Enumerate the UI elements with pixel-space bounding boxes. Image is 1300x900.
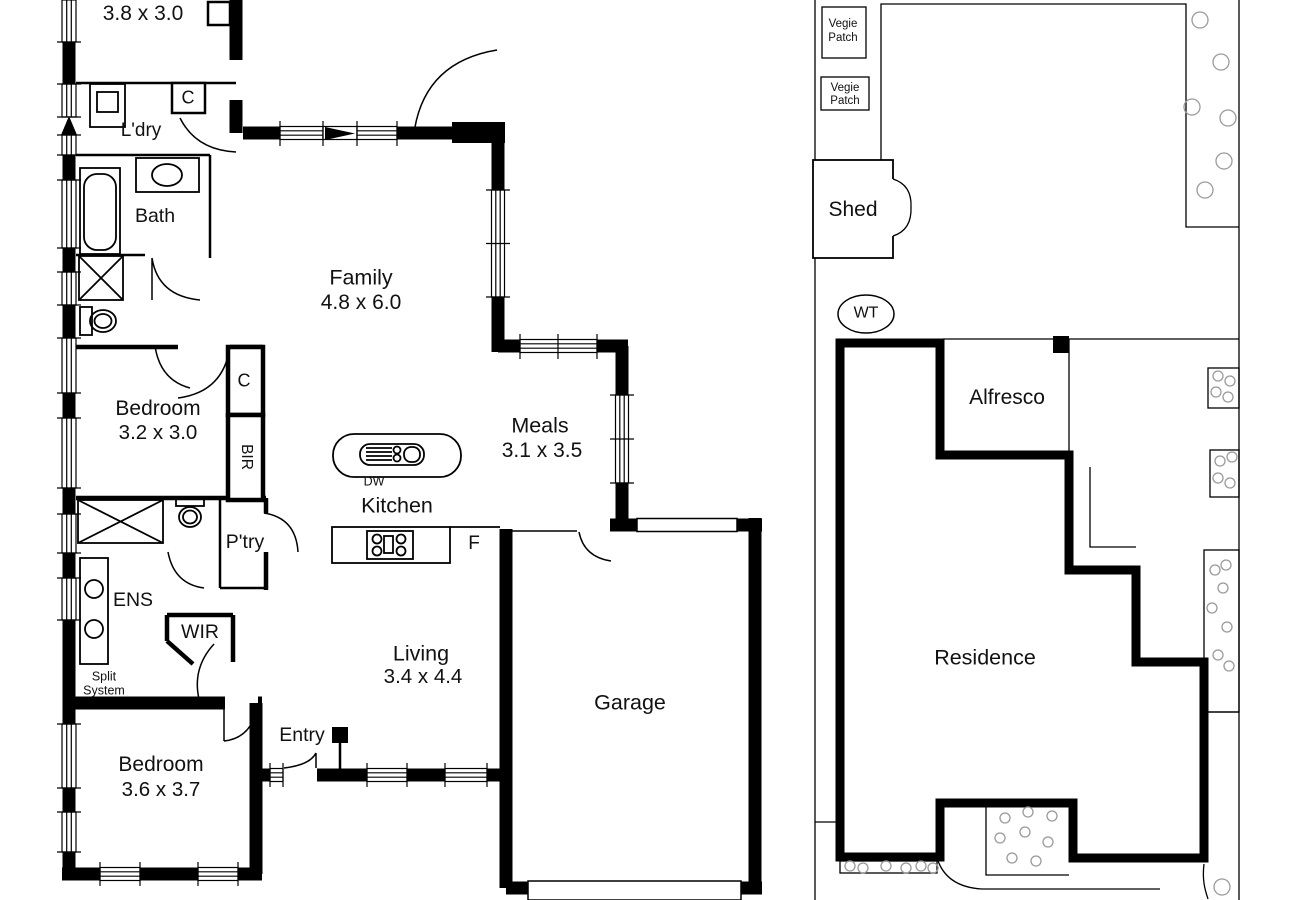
garden-bed-b bbox=[1210, 450, 1239, 497]
kitchen-label: Kitchen bbox=[361, 495, 433, 518]
vegie-patch-2-line2: Patch bbox=[830, 95, 859, 107]
bath-label: Bath bbox=[135, 206, 175, 226]
wir-door-arc bbox=[197, 644, 214, 699]
ensuite-door-arc bbox=[168, 552, 204, 588]
garage-door-arc bbox=[507, 531, 611, 561]
family-label: Family bbox=[329, 267, 392, 290]
laundry-label: L'dry bbox=[121, 121, 162, 141]
toilet-2 bbox=[176, 497, 204, 527]
floorplan-canvas: 3.8 x 3.0 L'dry C Bath Bedroom 3.2 x 3.0… bbox=[0, 0, 1300, 900]
shower-ensuite bbox=[78, 500, 163, 543]
family-corner-block bbox=[452, 122, 505, 143]
family-door-arc bbox=[414, 50, 497, 133]
bath-vanity bbox=[136, 158, 199, 192]
family-dims: 4.8 x 6.0 bbox=[321, 292, 402, 314]
entry-post bbox=[332, 727, 348, 743]
vegie-patch-1-line2: Patch bbox=[828, 32, 857, 44]
ensuite-vanity bbox=[80, 558, 108, 664]
site-lines bbox=[815, 0, 1239, 900]
dishwasher-label: DW bbox=[364, 475, 385, 488]
living-label: Living bbox=[393, 643, 449, 666]
fixtures bbox=[78, 84, 500, 664]
split-system-line2: System bbox=[83, 684, 125, 697]
door-arcs bbox=[152, 50, 611, 768]
bedroom2-door-arc bbox=[155, 346, 230, 398]
closet-top-label: C bbox=[182, 89, 195, 108]
meals-dims: 3.1 x 3.5 bbox=[502, 440, 583, 462]
meals-label: Meals bbox=[511, 415, 568, 438]
garage-rear-window bbox=[637, 519, 737, 532]
split-system-line1: Split bbox=[92, 670, 116, 683]
wir-label: WIR bbox=[181, 622, 219, 642]
entry-door-arc bbox=[284, 753, 316, 768]
pantry-door-arc bbox=[264, 513, 298, 552]
pantry-label: P'try bbox=[226, 532, 264, 552]
residence-label: Residence bbox=[934, 647, 1036, 670]
top-cupboard-box bbox=[208, 2, 230, 25]
interior-walls-medium bbox=[76, 347, 266, 664]
vegie-patch-2-line1: Vegie bbox=[831, 82, 860, 94]
closet-bedroom2-label: C bbox=[238, 372, 251, 391]
courtyard-outline bbox=[881, 4, 1239, 227]
bedroom2-dims: 3.2 x 3.0 bbox=[119, 422, 198, 444]
path-curves bbox=[937, 858, 1208, 899]
eave-step-lines bbox=[1090, 467, 1136, 547]
entry-label: Entry bbox=[279, 725, 325, 745]
vegie-patch-1-line1: Vegie bbox=[829, 18, 858, 30]
alfresco-label: Alfresco bbox=[969, 387, 1045, 409]
bedroom2-label: Bedroom bbox=[115, 398, 200, 420]
garden-bed-c bbox=[1204, 550, 1239, 712]
top-room-dims: 3.8 x 3.0 bbox=[103, 3, 184, 25]
ensuite-label: ENS bbox=[113, 590, 153, 610]
shed-door-arcs bbox=[893, 179, 911, 236]
garage-label: Garage bbox=[594, 692, 666, 715]
shed-label: Shed bbox=[828, 199, 877, 221]
bedroom3-label: Bedroom bbox=[118, 754, 203, 776]
bath-hall-door-arc bbox=[152, 258, 200, 300]
toilet-1 bbox=[80, 307, 116, 335]
living-dims: 3.4 x 4.4 bbox=[384, 666, 463, 688]
shower-bath bbox=[79, 256, 123, 300]
residence-outline bbox=[840, 343, 1204, 858]
laundry-door-arc bbox=[180, 118, 236, 152]
bedroom3-dims: 3.6 x 3.7 bbox=[122, 779, 201, 801]
fridge-label: F bbox=[468, 534, 480, 554]
north-arrow-icon bbox=[61, 116, 77, 135]
garage-roller-door bbox=[528, 881, 741, 900]
kitchen-island bbox=[333, 434, 461, 477]
water-tank-label: WT bbox=[854, 306, 879, 323]
bir-label: BIR bbox=[238, 444, 254, 470]
